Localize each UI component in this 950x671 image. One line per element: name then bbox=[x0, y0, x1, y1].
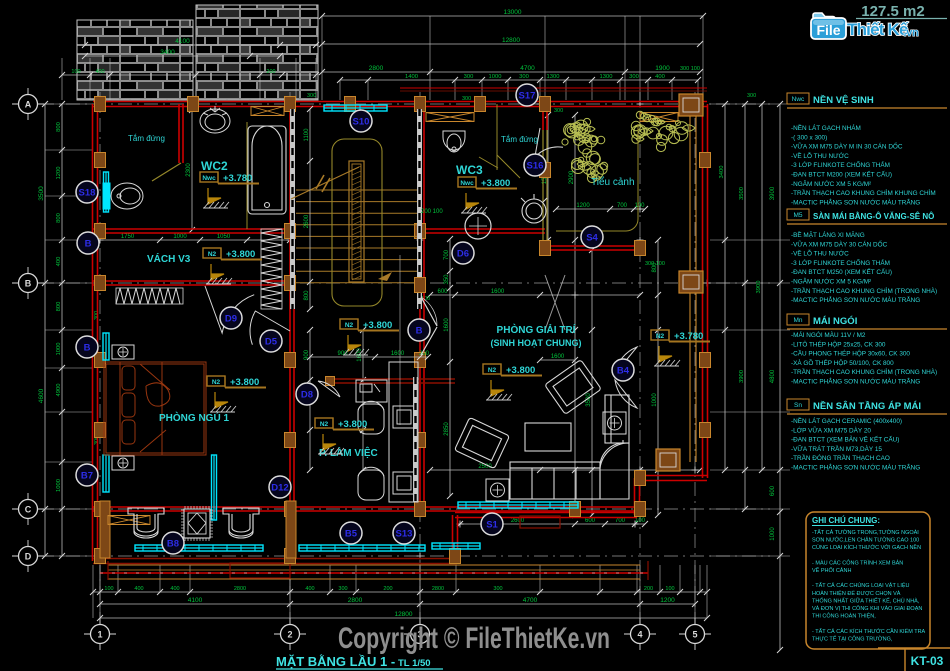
svg-text:MÁI NGÓI: MÁI NGÓI bbox=[813, 315, 857, 327]
svg-text:800: 800 bbox=[56, 302, 62, 312]
svg-text:Thiết Kế: Thiết Kế bbox=[847, 20, 909, 39]
svg-text:Tiểu cảnh: Tiểu cảnh bbox=[591, 176, 635, 188]
svg-text:A: A bbox=[25, 100, 32, 110]
svg-text:Tắm đứng: Tắm đứng bbox=[501, 135, 538, 144]
svg-text:3400: 3400 bbox=[160, 49, 175, 56]
svg-text:File: File bbox=[816, 22, 840, 38]
svg-text:1050: 1050 bbox=[217, 234, 231, 240]
svg-text:300: 300 bbox=[554, 108, 563, 114]
svg-text:Nwc: Nwc bbox=[792, 96, 805, 103]
svg-text:1000: 1000 bbox=[770, 527, 776, 541]
svg-text:1200: 1200 bbox=[660, 597, 675, 604]
svg-text:+3.800: +3.800 bbox=[506, 365, 535, 376]
svg-text:100: 100 bbox=[635, 518, 646, 524]
svg-text:4700: 4700 bbox=[523, 597, 538, 604]
svg-text:C: C bbox=[25, 505, 32, 515]
svg-text:D12: D12 bbox=[271, 483, 288, 494]
svg-text:B5: B5 bbox=[345, 529, 358, 540]
svg-text:3500: 3500 bbox=[38, 186, 45, 201]
svg-text:NỀN SÂN TẦNG ÁP MÁI: NỀN SÂN TẦNG ÁP MÁI bbox=[813, 400, 921, 412]
svg-text:HOÀN THIỆN ĐỂ ĐƯỢC CHỌN VÀ: HOÀN THIỆN ĐỂ ĐƯỢC CHỌN VÀ bbox=[812, 589, 901, 597]
svg-text:1400: 1400 bbox=[405, 74, 418, 80]
svg-text:B: B bbox=[25, 279, 32, 289]
svg-text:N2: N2 bbox=[208, 251, 217, 258]
svg-text:N2: N2 bbox=[212, 379, 221, 386]
svg-text:1900: 1900 bbox=[655, 65, 670, 72]
svg-text:+3.800: +3.800 bbox=[230, 377, 259, 388]
svg-text:-MACTIC PHẲNG SƠN NƯỚC MÀU TRẮ: -MACTIC PHẲNG SƠN NƯỚC MÀU TRẮNG bbox=[791, 197, 920, 206]
svg-text:1000: 1000 bbox=[56, 479, 62, 492]
svg-text:600: 600 bbox=[437, 289, 448, 295]
svg-text:100: 100 bbox=[71, 69, 80, 75]
svg-text:2800: 2800 bbox=[234, 586, 246, 592]
svg-text:2300: 2300 bbox=[186, 163, 192, 177]
svg-text:N2: N2 bbox=[488, 367, 497, 374]
svg-text:800: 800 bbox=[56, 122, 62, 132]
svg-text:D9: D9 bbox=[225, 314, 237, 325]
svg-text:300 100: 300 100 bbox=[645, 261, 665, 267]
svg-text:100: 100 bbox=[104, 586, 113, 592]
svg-text:D5: D5 bbox=[265, 337, 278, 348]
svg-text:200 100: 200 100 bbox=[421, 209, 443, 215]
svg-text:1600: 1600 bbox=[391, 351, 405, 357]
svg-text:- TẤT CẢ CÁC CHỦNG LOẠI VẬT LI: - TẤT CẢ CÁC CHỦNG LOẠI VẬT LIỆU bbox=[812, 581, 910, 589]
svg-text:VÀ ĐƠN VỊ THI CÔNG KHI VÀO GIA: VÀ ĐƠN VỊ THI CÔNG KHI VÀO GIAI ĐOẠN bbox=[812, 605, 922, 612]
svg-text:1200: 1200 bbox=[576, 203, 590, 209]
svg-text:1300: 1300 bbox=[547, 74, 560, 80]
svg-text:D8: D8 bbox=[301, 390, 313, 401]
svg-text:S4: S4 bbox=[586, 233, 598, 244]
svg-text:200: 200 bbox=[266, 69, 275, 75]
svg-text:1750: 1750 bbox=[121, 234, 135, 240]
svg-text:NỀN VỆ SINH: NỀN VỆ SINH bbox=[813, 94, 874, 106]
svg-text:(SINH HOẠT CHUNG): (SINH HOẠT CHUNG) bbox=[491, 338, 582, 348]
svg-text:.vn: .vn bbox=[904, 27, 920, 39]
svg-text:D6: D6 bbox=[457, 249, 469, 260]
svg-text:CÙNG LOẠI KÍCH THƯỚC VỚI GẠCH: CÙNG LOẠI KÍCH THƯỚC VỚI GẠCH NỀN bbox=[812, 544, 921, 551]
svg-text:S1: S1 bbox=[486, 520, 498, 531]
svg-text:-NGÂM NƯỚC XM 5 KG/M²: -NGÂM NƯỚC XM 5 KG/M² bbox=[791, 277, 871, 286]
svg-text:4900: 4900 bbox=[56, 384, 62, 397]
svg-text:Nwc: Nwc bbox=[202, 175, 216, 182]
svg-text:300: 300 bbox=[307, 93, 316, 99]
svg-text:SƠN NƯỚC,LEN CHÂN TƯỜNG CAO 10: SƠN NƯỚC,LEN CHÂN TƯỜNG CAO 100 bbox=[812, 537, 919, 544]
svg-text:1000: 1000 bbox=[173, 234, 187, 240]
svg-text:-( 300 x 300): -( 300 x 300) bbox=[791, 134, 827, 141]
svg-text:B4: B4 bbox=[617, 366, 630, 377]
svg-text:Copyright © FileThietKe.vn: Copyright © FileThietKe.vn bbox=[338, 622, 610, 655]
svg-text:B: B bbox=[84, 343, 91, 354]
svg-text:S17: S17 bbox=[519, 91, 536, 102]
svg-text:1100: 1100 bbox=[304, 128, 310, 142]
svg-text:M5: M5 bbox=[793, 212, 802, 219]
svg-text:4700: 4700 bbox=[520, 65, 535, 72]
svg-text:-MÁI NGÓI MÀU 11V / M2: -MÁI NGÓI MÀU 11V / M2 bbox=[791, 330, 866, 339]
svg-text:300: 300 bbox=[747, 93, 756, 99]
svg-text:WC3: WC3 bbox=[456, 163, 483, 177]
svg-text:200: 200 bbox=[383, 586, 392, 592]
svg-text:200: 200 bbox=[419, 351, 430, 357]
svg-text:700: 700 bbox=[615, 518, 626, 524]
svg-text:N2: N2 bbox=[656, 333, 665, 340]
svg-text:3900: 3900 bbox=[739, 370, 745, 383]
svg-text:3900: 3900 bbox=[770, 186, 776, 200]
svg-text:-LỚP VỮA XM M75 DÀY 20: -LỚP VỮA XM M75 DÀY 20 bbox=[791, 425, 871, 434]
svg-text:Sn: Sn bbox=[794, 402, 802, 409]
svg-text:2800: 2800 bbox=[348, 597, 363, 604]
svg-text:2600: 2600 bbox=[511, 518, 525, 524]
svg-text:-MACTIC PHẲNG SƠN NƯỚC MÀU TRẮ: -MACTIC PHẲNG SƠN NƯỚC MÀU TRẮNG bbox=[791, 463, 920, 472]
svg-text:N2: N2 bbox=[345, 322, 354, 329]
svg-text:1000: 1000 bbox=[56, 343, 62, 356]
svg-text:400: 400 bbox=[56, 257, 62, 267]
svg-text:400: 400 bbox=[170, 586, 179, 592]
svg-text:1200: 1200 bbox=[56, 167, 62, 180]
svg-text:300 100: 300 100 bbox=[680, 66, 700, 72]
svg-text:300: 300 bbox=[519, 74, 529, 80]
svg-text:THỐNG NHẤT GIỮA THIẾT KẾ, CHỦ: THỐNG NHẤT GIỮA THIẾT KẾ, CHỦ NHÀ, bbox=[812, 597, 920, 604]
svg-text:4: 4 bbox=[637, 630, 642, 640]
svg-text:+3.800: +3.800 bbox=[338, 419, 367, 430]
svg-text:400: 400 bbox=[95, 69, 104, 75]
svg-text:-TẤT CẢ TƯỜNG TRONG,TƯỜNG NGOÀ: -TẤT CẢ TƯỜNG TRONG,TƯỜNG NGOÀI bbox=[812, 529, 919, 536]
svg-text:300: 300 bbox=[464, 74, 474, 80]
svg-text:Nwc: Nwc bbox=[460, 180, 474, 187]
svg-text:-NGÂM NƯỚC XM 5 KG/M²: -NGÂM NƯỚC XM 5 KG/M² bbox=[791, 179, 871, 188]
svg-text:2: 2 bbox=[287, 630, 292, 640]
svg-text:TL 1/50: TL 1/50 bbox=[398, 658, 431, 669]
svg-text:4100: 4100 bbox=[175, 38, 190, 45]
svg-text:Tắm đứng: Tắm đứng bbox=[128, 134, 165, 143]
svg-text:VÁCH V3: VÁCH V3 bbox=[147, 252, 191, 265]
svg-text:GHI CHÚ CHUNG:: GHI CHÚ CHUNG: bbox=[812, 516, 880, 525]
svg-text:-LITÔ THÉP HỘP 25x25, CK 300: -LITÔ THÉP HỘP 25x25, CK 300 bbox=[791, 339, 886, 348]
svg-text:1300: 1300 bbox=[600, 74, 613, 80]
svg-text:600: 600 bbox=[585, 518, 596, 524]
svg-text:1000: 1000 bbox=[652, 393, 658, 407]
svg-text:800: 800 bbox=[304, 290, 310, 301]
svg-text:300: 300 bbox=[493, 586, 502, 592]
svg-text:13000: 13000 bbox=[503, 9, 521, 16]
svg-text:127.5 m2: 127.5 m2 bbox=[861, 3, 924, 20]
svg-text:- MÀU CÁC CÔNG TRÌNH XEM BẢN: - MÀU CÁC CÔNG TRÌNH XEM BẢN bbox=[812, 559, 903, 566]
svg-text:2800: 2800 bbox=[369, 65, 384, 72]
svg-text:+3.780: +3.780 bbox=[223, 173, 252, 184]
svg-text:- TẤT CẢ CÁC KÍCH THƯỚC CẦN KI: - TẤT CẢ CÁC KÍCH THƯỚC CẦN KIỂM TRA bbox=[812, 628, 926, 635]
svg-text:S13: S13 bbox=[396, 529, 413, 540]
svg-text:-MACTIC PHẲNG SƠN NƯỚC MÀU TRẮ: -MACTIC PHẲNG SƠN NƯỚC MÀU TRẮNG bbox=[791, 377, 920, 386]
svg-text:D: D bbox=[25, 552, 32, 562]
svg-text:4600: 4600 bbox=[38, 388, 45, 403]
svg-text:WC2: WC2 bbox=[201, 159, 228, 173]
svg-text:B7: B7 bbox=[81, 471, 93, 482]
svg-text:200: 200 bbox=[644, 586, 653, 592]
svg-text:B: B bbox=[416, 326, 423, 337]
svg-text:3500: 3500 bbox=[739, 187, 745, 200]
svg-text:3900: 3900 bbox=[756, 281, 762, 294]
svg-text:600: 600 bbox=[770, 485, 776, 496]
svg-text:1600: 1600 bbox=[551, 354, 565, 360]
svg-text:3400: 3400 bbox=[719, 166, 725, 179]
svg-text:S18: S18 bbox=[79, 188, 96, 199]
svg-text:4100: 4100 bbox=[188, 597, 203, 604]
svg-text:PHÒNG NGỦ 1: PHÒNG NGỦ 1 bbox=[159, 411, 229, 424]
svg-text:+3.800: +3.800 bbox=[363, 320, 392, 331]
svg-text:1: 1 bbox=[97, 630, 102, 640]
svg-text:SÀN MÁI BẰNG-Ô VĂNG-SÊ NÔ: SÀN MÁI BẰNG-Ô VĂNG-SÊ NÔ bbox=[813, 212, 934, 221]
svg-text:B8: B8 bbox=[167, 539, 179, 550]
svg-text:2800: 2800 bbox=[432, 586, 444, 592]
svg-text:4800: 4800 bbox=[770, 369, 776, 383]
svg-text:Mn: Mn bbox=[793, 317, 802, 324]
svg-text:+3.800: +3.800 bbox=[481, 178, 510, 189]
svg-text:N2: N2 bbox=[320, 421, 329, 428]
svg-text:1600: 1600 bbox=[444, 318, 450, 332]
svg-text:800: 800 bbox=[56, 213, 62, 223]
svg-text:-MACTIC PHẲNG SƠN NƯỚC MÀU TRẮ: -MACTIC PHẲNG SƠN NƯỚC MÀU TRẮNG bbox=[791, 295, 920, 304]
svg-text:2850: 2850 bbox=[444, 422, 450, 436]
svg-text:350: 350 bbox=[444, 274, 450, 285]
svg-text:S10: S10 bbox=[353, 117, 370, 128]
svg-text:1000: 1000 bbox=[489, 74, 502, 80]
svg-text:S16: S16 bbox=[527, 161, 544, 172]
svg-text:B: B bbox=[85, 239, 92, 250]
svg-text:THI CÔNG HOÀN THIỆN,: THI CÔNG HOÀN THIỆN, bbox=[812, 612, 876, 620]
svg-text:700: 700 bbox=[617, 203, 628, 209]
svg-text:700: 700 bbox=[444, 249, 450, 260]
svg-text:400: 400 bbox=[655, 74, 665, 80]
svg-text:12800: 12800 bbox=[502, 37, 520, 44]
svg-text:PHÒNG GIẢI TRÍ: PHÒNG GIẢI TRÍ bbox=[497, 323, 576, 336]
svg-text:12800: 12800 bbox=[394, 611, 412, 618]
svg-text:+3.800: +3.800 bbox=[226, 249, 255, 260]
svg-text:400: 400 bbox=[305, 586, 314, 592]
svg-text:VẼ PHỐI CẢNH: VẼ PHỐI CẢNH bbox=[812, 567, 851, 574]
svg-text:5: 5 bbox=[692, 630, 697, 640]
svg-text:+3.780: +3.780 bbox=[674, 331, 703, 342]
svg-text:2600: 2600 bbox=[304, 214, 310, 228]
svg-text:KT-03: KT-03 bbox=[911, 654, 944, 668]
svg-text:MẶT BẰNG LẦU 1 -: MẶT BẰNG LẦU 1 - bbox=[276, 654, 395, 669]
svg-text:300: 300 bbox=[338, 586, 347, 592]
svg-text:400: 400 bbox=[134, 586, 143, 592]
svg-text:100: 100 bbox=[665, 586, 674, 592]
svg-text:THỰC TẾ TẠI CÔNG TRƯỜNG,: THỰC TẾ TẠI CÔNG TRƯỜNG, bbox=[812, 635, 893, 642]
svg-text:300: 300 bbox=[629, 74, 639, 80]
svg-text:1600: 1600 bbox=[491, 289, 505, 295]
